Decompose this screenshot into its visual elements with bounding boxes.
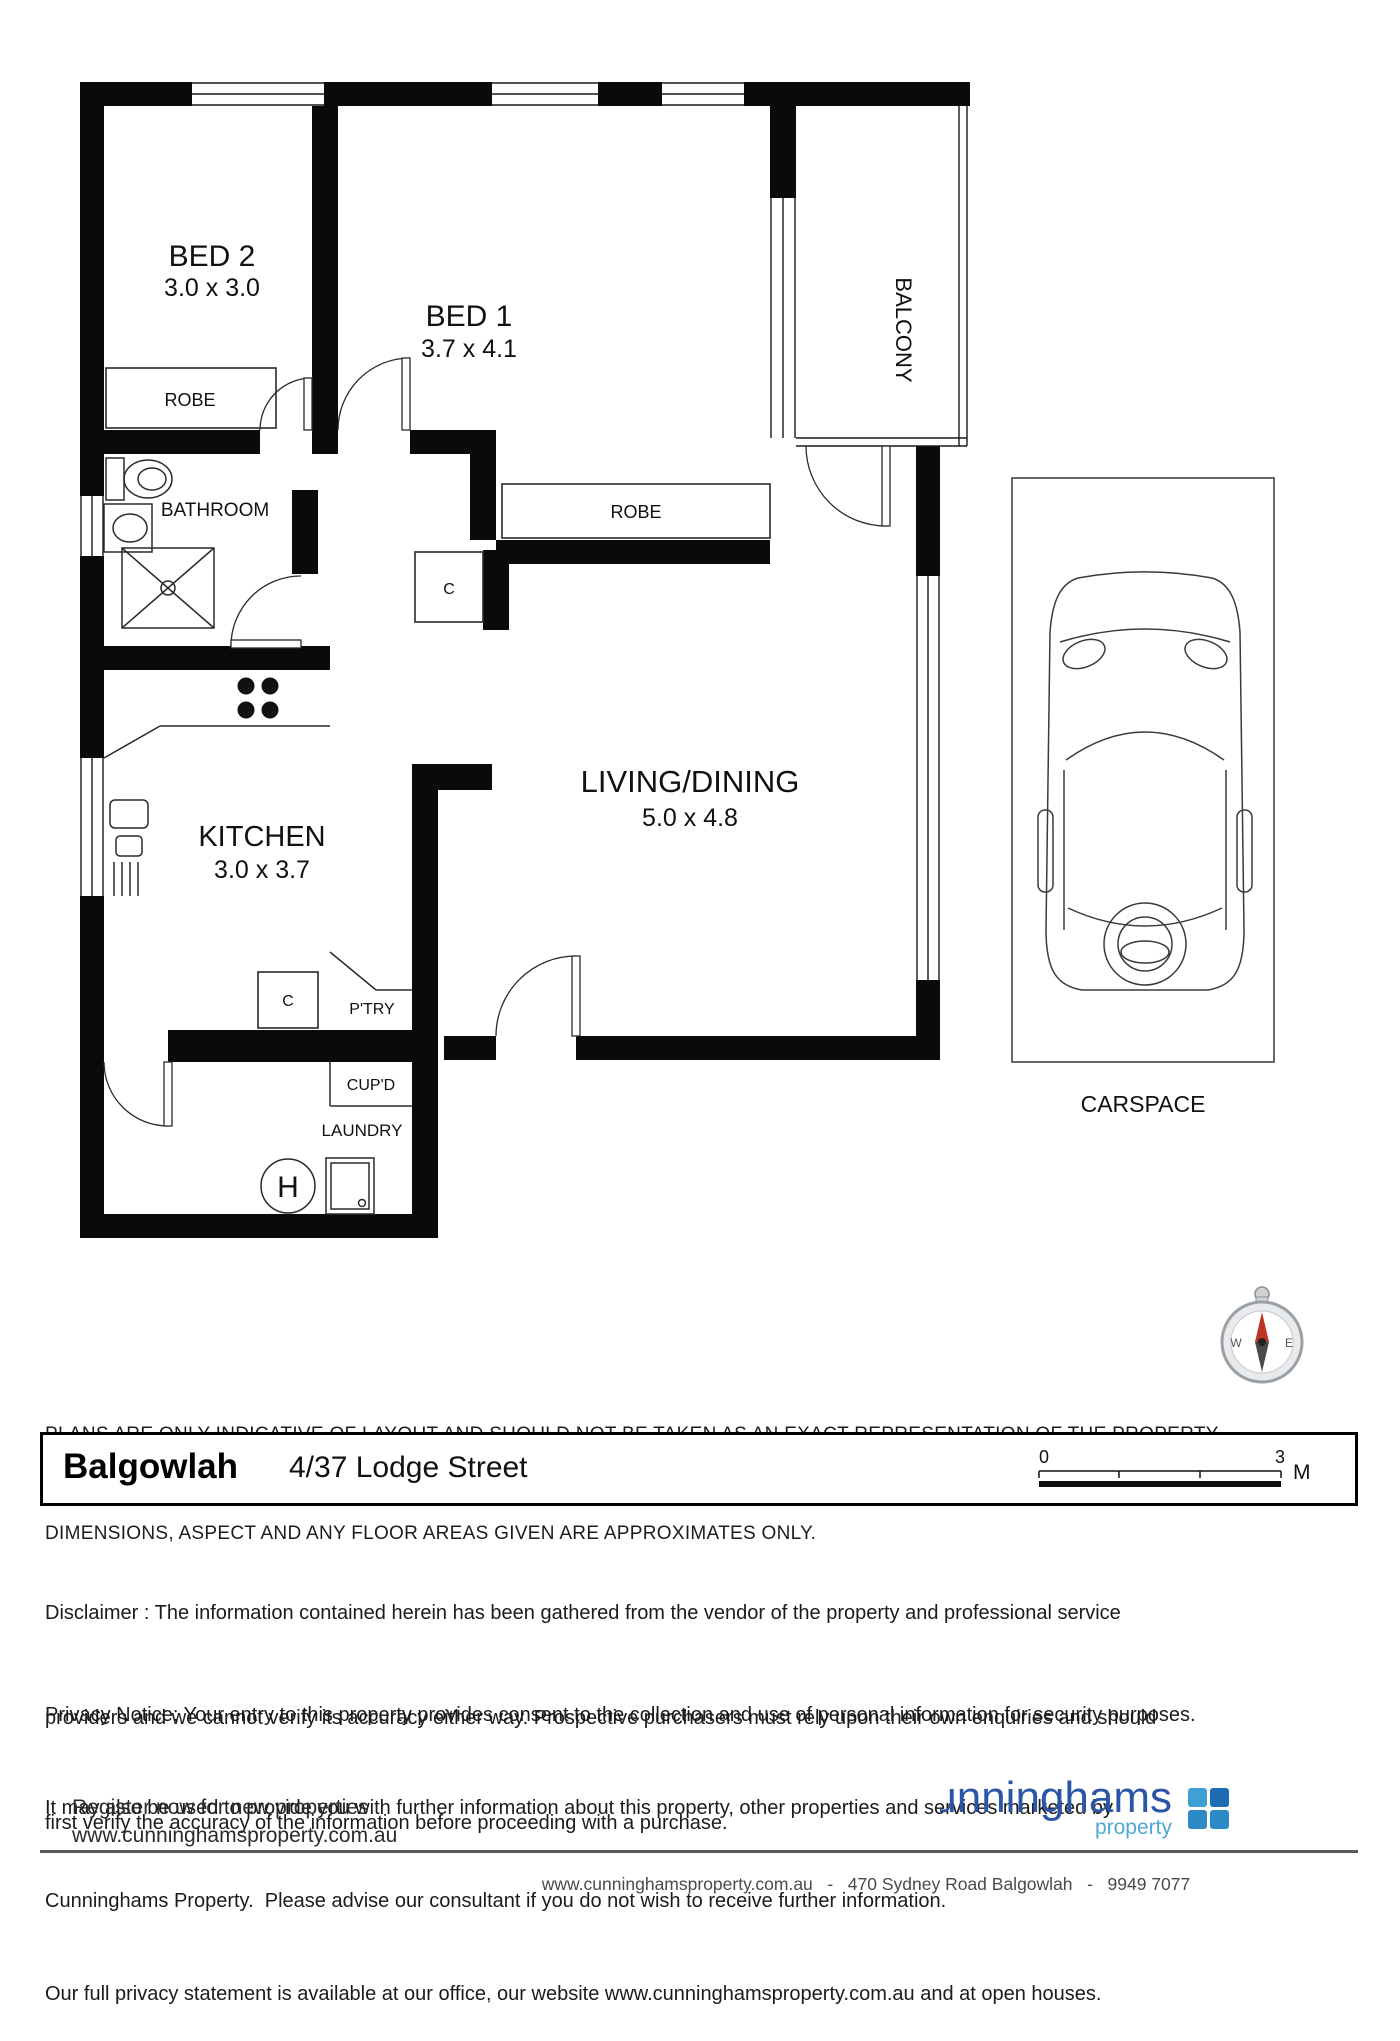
door-bathroom: [231, 576, 301, 648]
window-bed2-top: [192, 83, 324, 105]
window-kitchen-left: [81, 758, 103, 896]
door-balcony: [806, 446, 890, 526]
door-laundry: [104, 1062, 172, 1126]
closet-hall-label: C: [443, 581, 455, 598]
kitchen-counter: [104, 726, 330, 758]
basin-icon: [104, 504, 152, 552]
robe-bed2-label: ROBE: [164, 390, 215, 410]
bed1-dims: 3.7 x 4.1: [421, 335, 517, 363]
cunninghams-logo: cunninghams property: [940, 1764, 1240, 1850]
stove-icon: [238, 678, 279, 719]
bed2-dims: 3.0 x 3.0: [164, 274, 260, 302]
door-bed2: [260, 378, 312, 430]
scale-bar: 0 3 M: [1031, 1439, 1331, 1497]
scale-start-label: 0: [1039, 1447, 1049, 1467]
address-bar: Balgowlah 4/37 Lodge Street 0 3 M: [40, 1432, 1358, 1506]
scale-end-label: 3: [1275, 1447, 1285, 1467]
kitchen-label: KITCHEN: [198, 821, 325, 853]
car-icon: [1038, 572, 1252, 990]
laundry-label: LAUNDRY: [322, 1121, 403, 1140]
living-dims: 5.0 x 4.8: [642, 804, 738, 832]
shower-icon: [122, 548, 214, 628]
scale-bar-fill: [1039, 1481, 1281, 1487]
compass-icon: W E: [1212, 1282, 1312, 1386]
carspace: [1012, 478, 1274, 1062]
logo-tagline: property: [1095, 1816, 1173, 1839]
window-bathroom-left: [81, 496, 103, 556]
street-address: 4/37 Lodge Street: [289, 1451, 528, 1485]
floorplan-flyer-page: { "floorplan": { "rooms": { "bed2": {"la…: [0, 0, 1400, 1982]
carspace-label: CARSPACE: [1081, 1091, 1206, 1117]
pantry-label: P'TRY: [349, 1001, 395, 1018]
robe-bed1-label: ROBE: [610, 502, 661, 522]
suburb-title: Balgowlah: [63, 1447, 238, 1487]
kitchen-sink-icon: [110, 800, 148, 896]
logo-squares-icon: [1188, 1788, 1229, 1829]
register-link[interactable]: www.cunninghamsproperty.com.au: [72, 1822, 397, 1850]
bed1-label: BED 1: [426, 300, 513, 333]
window-bed1-balcony: [771, 198, 795, 438]
cupboard-label: CUP'D: [347, 1077, 395, 1094]
bed2-label: BED 2: [169, 240, 256, 273]
register-line1: Register now for new properties: [72, 1794, 397, 1822]
kitchen-dims: 3.0 x 3.7: [214, 856, 310, 884]
privacy-line1: Privacy Notice: Your entry to this prope…: [45, 1700, 1196, 1731]
compass-east-label: E: [1285, 1336, 1293, 1350]
privacy-line4: Our full privacy statement is available …: [45, 1979, 1196, 2010]
window-living-right: [917, 576, 939, 980]
window-bed1-top: [492, 83, 598, 105]
window-balcony-top: [662, 83, 744, 105]
balcony-rail: [796, 106, 967, 446]
doors: [104, 358, 890, 1126]
footer-contact: www.cunninghamsproperty.com.au - 470 Syd…: [332, 1874, 1400, 1895]
washing-machine-icon: [326, 1158, 374, 1214]
pantry-lines: [330, 952, 412, 990]
floor-plan: BED 2 3.0 x 3.0 BED 1 3.7 x 4.1 BALCONY …: [0, 0, 1400, 1250]
door-entry: [496, 956, 580, 1036]
disclaimer-line1: Disclaimer : The information contained h…: [45, 1596, 1156, 1631]
hot-water-label: H: [277, 1171, 299, 1204]
closet-kitchen-label: C: [282, 993, 294, 1010]
living-label: LIVING/DINING: [581, 764, 800, 799]
bathroom-label: BATHROOM: [161, 500, 269, 521]
scale-unit-label: M: [1293, 1461, 1311, 1484]
register-block: Register now for new properties www.cunn…: [72, 1794, 397, 1850]
balcony-label: BALCONY: [891, 277, 916, 382]
logo-name: cunninghams: [940, 1773, 1172, 1822]
compass-west-label: W: [1230, 1336, 1242, 1350]
footer-divider: [40, 1850, 1358, 1853]
door-bed1: [338, 358, 410, 430]
toilet-icon: [106, 458, 172, 500]
